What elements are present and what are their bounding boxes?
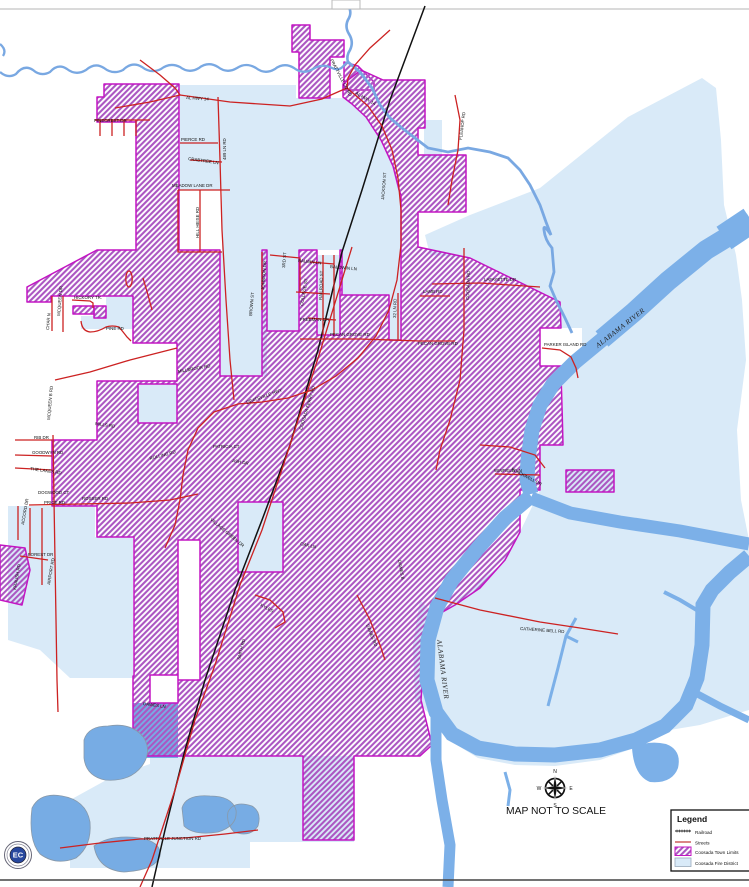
svg-text:PATRICIA CT: PATRICIA CT <box>213 444 240 449</box>
svg-text:MEADOW LANE DR: MEADOW LANE DR <box>172 183 213 188</box>
svg-text:489 LN RD: 489 LN RD <box>222 138 227 160</box>
svg-text:EC: EC <box>13 851 24 860</box>
svg-text:FREEMAN DR: FREEMAN DR <box>300 317 329 322</box>
svg-text:RIB DR: RIB DR <box>34 435 49 440</box>
svg-text:PIERCE RD: PIERCE RD <box>181 137 205 142</box>
svg-text:COOSADA RD: COOSADA RD <box>465 271 471 300</box>
svg-text:Coosada Town Limits: Coosada Town Limits <box>695 850 739 855</box>
svg-text:PRICE RD: PRICE RD <box>44 500 65 505</box>
svg-text:LAMB RD: LAMB RD <box>423 289 443 294</box>
svg-text:32 LN RD: 32 LN RD <box>392 299 398 318</box>
svg-text:LAFAYETTE DR: LAFAYETTE DR <box>484 277 516 282</box>
svg-text:WINFIELD LN: WINFIELD LN <box>494 468 522 473</box>
svg-text:W: W <box>537 786 542 792</box>
svg-text:HILL HEISE RD: HILL HEISE RD <box>195 207 200 238</box>
svg-text:Coosada Fire District: Coosada Fire District <box>695 861 739 866</box>
svg-text:PARKER ISLAND RD: PARKER ISLAND RD <box>544 342 586 347</box>
svg-text:PECAN GROVE RD: PECAN GROVE RD <box>418 341 458 346</box>
svg-text:DOGWOOD CT: DOGWOOD CT <box>38 490 70 495</box>
svg-text:RAILROAD ST: RAILROAD ST <box>318 270 324 300</box>
svg-text:Streets: Streets <box>695 841 710 846</box>
svg-text:PECAN GROVE RD: PECAN GROVE RD <box>330 332 370 337</box>
svg-text:HICKORY TR.: HICKORY TR. <box>74 295 102 300</box>
svg-text:Railroad: Railroad <box>695 830 713 835</box>
svg-text:PINE RD: PINE RD <box>106 326 124 331</box>
svg-text:PINECREST DR: PINECREST DR <box>94 118 127 123</box>
svg-text:Legend: Legend <box>677 814 707 824</box>
svg-text:PRATTVILLE JUNCTION RD: PRATTVILLE JUNCTION RD <box>144 836 201 841</box>
svg-text:N: N <box>553 769 557 775</box>
svg-text:GOODWYN RD: GOODWYN RD <box>32 450 63 455</box>
svg-text:FOREST DR: FOREST DR <box>28 552 53 557</box>
svg-text:ROSSER RD: ROSSER RD <box>82 496 108 501</box>
